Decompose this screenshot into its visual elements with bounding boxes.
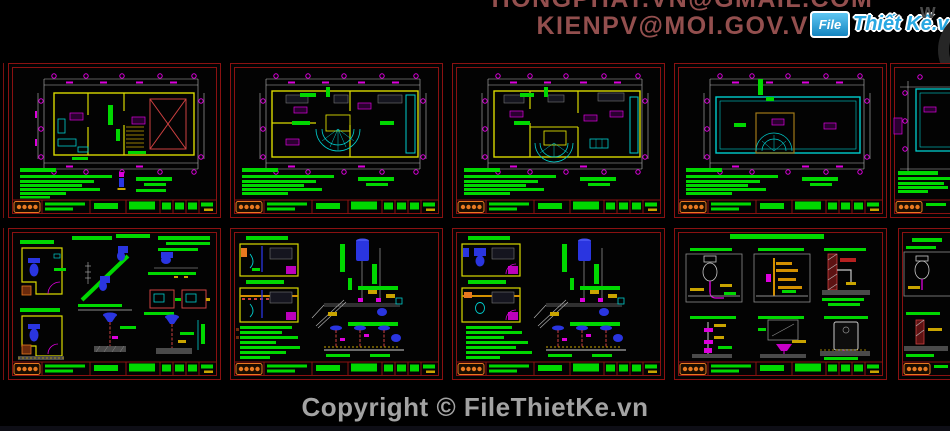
plan-labels	[510, 87, 623, 125]
title-block	[13, 200, 217, 214]
bathroom-plan-b	[240, 280, 298, 322]
legend-blobs	[358, 177, 394, 186]
roof-plan-drawing	[674, 63, 887, 218]
title-block	[457, 200, 661, 214]
detail-wall-chase	[822, 254, 870, 306]
dimension-grid	[260, 74, 426, 174]
sheet-sanitary-details	[8, 228, 221, 380]
cad-logo	[236, 202, 262, 213]
cad-logo	[14, 202, 40, 213]
floor-drain-section-2	[144, 312, 205, 354]
detail-lavabo-mirror	[758, 320, 806, 358]
sheet-second-floor-plan	[230, 63, 443, 218]
cad-logo	[14, 364, 40, 375]
dimension-grid	[35, 74, 204, 174]
notes-stack	[898, 171, 950, 193]
sheet-drainage-schematic	[452, 228, 665, 380]
cad-logo	[896, 202, 922, 213]
cad-logo	[904, 364, 930, 375]
sheet-third-floor-plan	[452, 63, 665, 218]
detail-box-toilet	[686, 254, 742, 302]
sheet-installation-details	[674, 228, 887, 380]
sheet-partial-right-top	[890, 63, 950, 218]
partial-plan-drawing	[890, 63, 950, 218]
bathroom-plan-a	[240, 236, 298, 276]
detail-box-pipe-riser	[754, 254, 810, 302]
title-block	[457, 362, 661, 376]
cad-logo	[680, 202, 706, 213]
scale-figure	[118, 172, 126, 190]
title-block	[895, 200, 950, 213]
drainage-drawing	[452, 228, 665, 380]
legend-blobs	[136, 177, 172, 192]
kitchen-fixtures	[58, 119, 88, 152]
riser-diagram	[312, 239, 402, 329]
installation-details-drawing	[674, 228, 887, 380]
floor-drain-section-1	[94, 313, 136, 353]
kitchen-stove	[590, 139, 608, 148]
sheet-roof-plan	[674, 63, 887, 218]
title-block	[679, 362, 883, 376]
copyright-text: Copyright © FileThietKe.vn	[0, 392, 950, 423]
bathroom-plan-bottom	[18, 308, 64, 360]
sheet-heading-text	[730, 234, 824, 239]
stair-bulkhead	[756, 113, 794, 153]
cad-logo	[458, 364, 484, 375]
sheet-partial-right-bottom	[898, 228, 950, 380]
water-supply-drawing	[230, 228, 443, 380]
balcony	[630, 97, 638, 153]
notes-stack	[236, 326, 300, 359]
drainage-diagram	[546, 322, 626, 357]
notes-stack	[20, 168, 112, 199]
bottom-strip	[0, 426, 950, 431]
void-hatch	[150, 99, 186, 149]
cutoff-sheet-edge-top	[0, 63, 4, 218]
notes-stack	[464, 168, 556, 195]
third-floor-plan-drawing	[452, 63, 665, 218]
plan-labels	[734, 79, 836, 129]
pipe-isometric	[72, 234, 150, 310]
second-floor-plan-drawing	[230, 63, 443, 218]
dimension-grid	[704, 74, 870, 174]
bathroom-plan-top	[20, 240, 66, 295]
balcony	[406, 95, 415, 153]
cutoff-sheet-edge-bottom	[0, 228, 4, 380]
title-block	[235, 200, 439, 214]
legend-blobs	[802, 177, 838, 186]
partial-details-drawing	[898, 228, 950, 380]
cad-preview-image: HONGPHAT.VN@GMAIL.COM KIENPV@MOI.GOV.VN …	[0, 0, 950, 431]
title-block	[235, 362, 439, 376]
detail-valve-pipe	[692, 322, 732, 358]
title-block	[903, 362, 950, 375]
toilet-section	[148, 236, 210, 278]
cad-logo	[236, 364, 262, 375]
title-block	[13, 362, 217, 376]
control-panels	[150, 290, 210, 308]
ground-floor-plan-drawing	[8, 63, 221, 218]
legend-blobs	[580, 177, 616, 186]
sheet-ground-floor-plan	[8, 63, 221, 218]
folder-icon: File	[810, 11, 850, 38]
detail-water-heater	[820, 322, 870, 360]
notes-stack	[242, 168, 334, 195]
stair-treads	[126, 127, 144, 147]
dimension-grid	[482, 74, 648, 174]
sheet-water-supply-schematic	[230, 228, 443, 380]
sanitary-details-drawing	[8, 228, 221, 380]
drainage-diagram	[324, 322, 404, 357]
notes-stack	[686, 168, 778, 195]
cad-logo	[458, 202, 484, 213]
title-block	[679, 200, 883, 214]
notes-stack	[466, 326, 532, 359]
cad-logo	[680, 364, 706, 375]
watermark-letter: w	[920, 1, 936, 24]
bathroom-plan-b	[462, 280, 520, 322]
riser-diagram	[534, 239, 624, 329]
bathroom-plan-a	[462, 236, 520, 276]
spiral-stair	[316, 115, 360, 151]
